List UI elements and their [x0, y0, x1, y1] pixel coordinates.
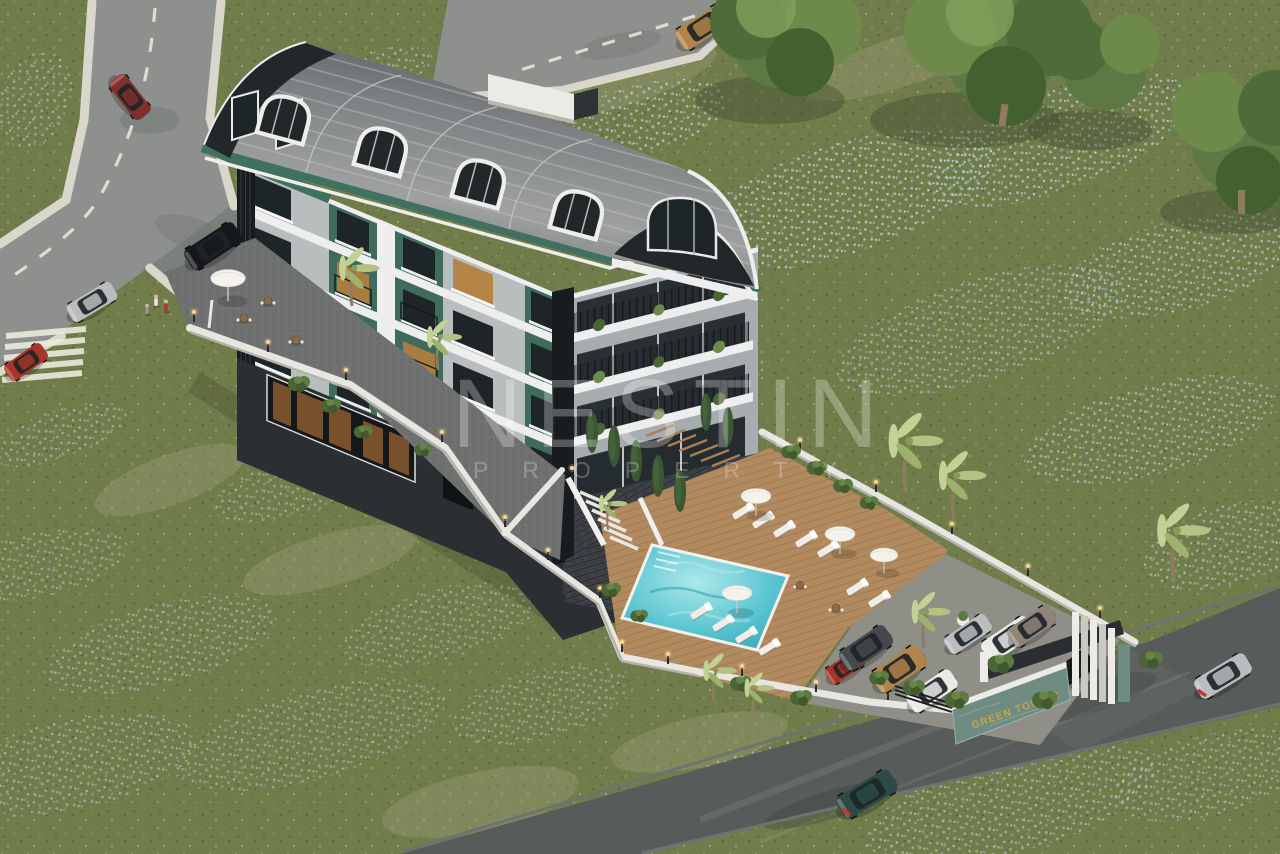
gable-window [232, 91, 258, 140]
watermark: NESTIN PROPERTY [452, 359, 892, 483]
gable-arched-window [648, 198, 716, 258]
scene-render: GREEN TOWN 2 [0, 0, 1280, 854]
watermark-line2: PROPERTY [473, 457, 871, 483]
render-canvas: GREEN TOWN 2 [0, 0, 1280, 854]
watermark-line1: NESTIN [452, 359, 892, 468]
